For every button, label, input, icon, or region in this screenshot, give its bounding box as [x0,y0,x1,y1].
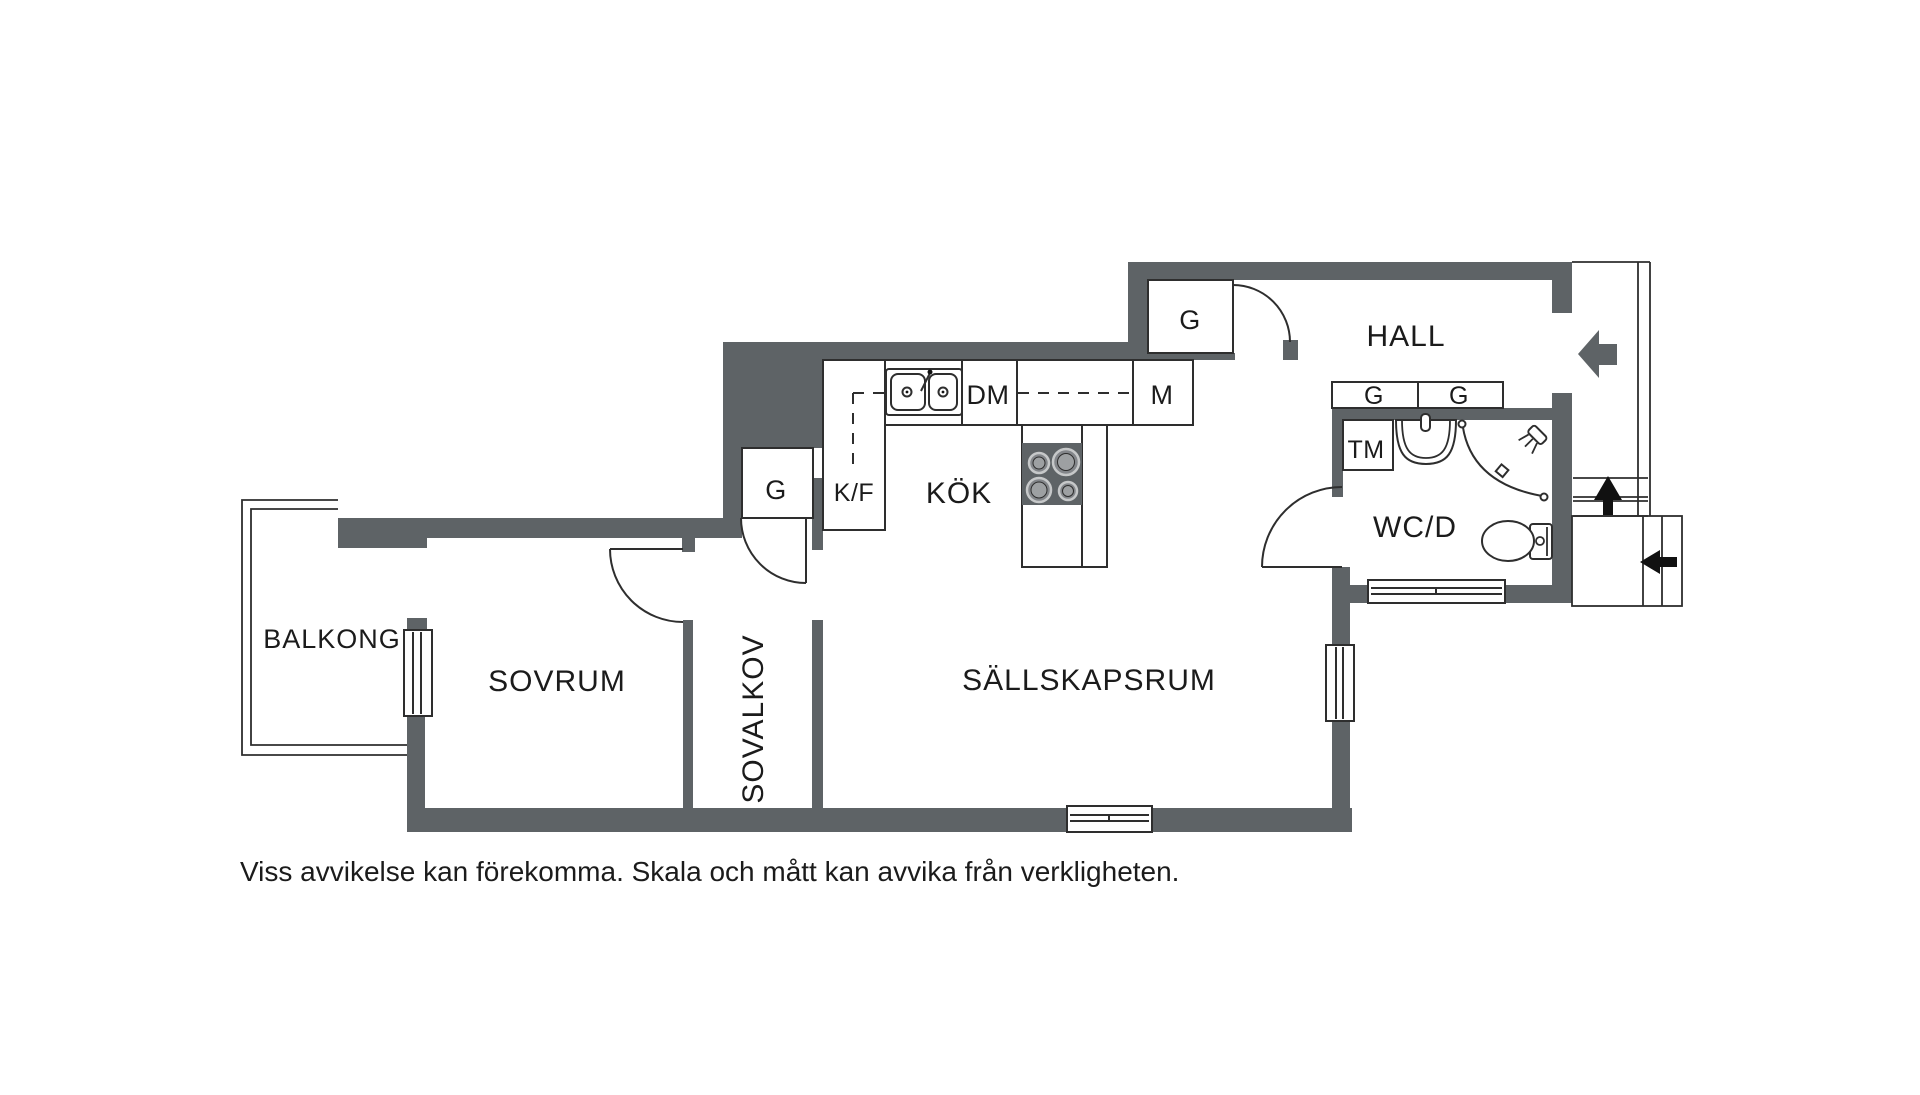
stove-icon [1022,443,1082,505]
room-label-hall: HALL [1366,320,1445,353]
room-label-kok: KÖK [926,477,992,510]
closet-kitchen [741,448,813,583]
room-label-sovalkov: SOVALKOV [737,634,770,803]
door-arc-wcd [1262,487,1342,567]
wall-north-thick [338,518,427,548]
label-microwave: M [1151,380,1174,410]
wall-divider-sovrum-sovalkov [683,620,693,808]
window-wcd-south [1368,580,1505,603]
door-wcd [1262,487,1342,567]
door-arc-sovrum [610,549,683,622]
room-label-sovrum: SOVRUM [488,665,626,698]
door-arc-closet-hall [1233,285,1290,342]
label-washing-machine: TM [1347,436,1384,464]
label-closet-hall: G [1179,305,1201,335]
window-livingroom-east [1326,645,1354,721]
closet-row-gg [1332,382,1503,408]
stairs-left-arrow-icon [1640,550,1677,574]
entry-arrow-icon [1578,330,1617,378]
wall-hall-sliver [1148,353,1235,360]
wall-east [1552,393,1572,603]
label-dishwasher: DM [967,380,1010,410]
disclaimer-text: Viss avvikelse kan förekomma. Skala och … [240,856,1179,887]
room-label-wcd: WC/D [1373,511,1457,544]
wall-south [407,808,1352,832]
window-sovrum-west [404,630,432,716]
floor-plan-page: BALKONG SOVRUM SOVALKOV SÄLLSKAPSRUM KÖK… [0,0,1920,1095]
stairs-up-arrow-icon [1594,476,1622,515]
closet-hall [1148,280,1290,353]
door-sovrum [610,549,683,622]
wall-wcd-west-upper [1332,420,1343,497]
washbasin-icon [1396,414,1456,464]
wall-wcd-west-lower [1332,567,1350,647]
label-closet-wc-right: G [1449,382,1469,410]
label-closet-wc-left: G [1364,382,1384,410]
floor-plan: BALKONG SOVRUM SOVALKOV SÄLLSKAPSRUM KÖK… [0,0,1920,1095]
room-label-sallskapsrum: SÄLLSKAPSRUM [962,664,1216,697]
label-fridge-freezer: K/F [834,479,874,507]
wall-sovrum-door-jamb [682,535,695,552]
room-label-balkong: BALKONG [263,624,401,654]
label-closet-kitchen: G [765,475,787,505]
sink-icon [886,369,962,415]
wall-hall-stub [1283,340,1298,360]
toilet-icon [1482,521,1552,561]
wall-entry-jamb [1552,280,1572,313]
window-livingroom-south [1067,806,1152,832]
shower-icon [1459,420,1549,501]
stairwell [1572,262,1682,606]
door-arc-closet-kitchen [741,518,806,583]
wall-divider-sovalkov-livingroom [812,620,823,812]
wall-kitchen-west [723,342,742,532]
wall-west-lower [407,713,425,832]
wall-hall-north [1128,262,1572,280]
